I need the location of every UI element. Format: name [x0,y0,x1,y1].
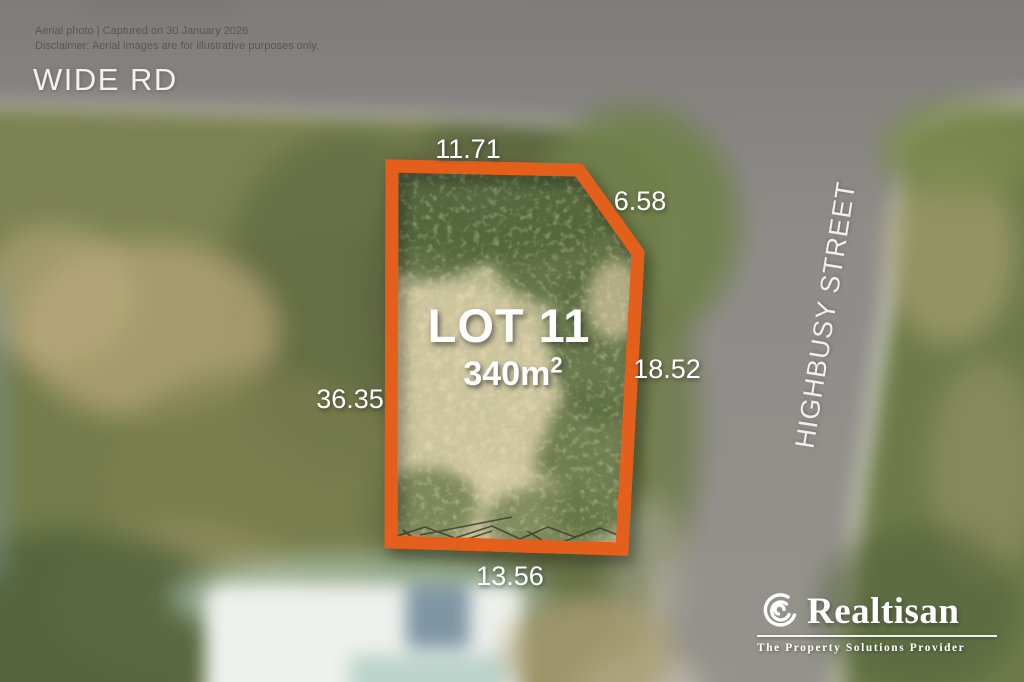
disclaimer-line: Disclaimer: Aerial images are for illust… [35,39,319,54]
measurement-top: 11.71 [435,134,501,165]
brand-name: Realtisan [807,593,960,630]
lot-title: LOT 11 [428,298,591,353]
credit-line: Aerial photo | Captured on 30 January 20… [35,24,319,39]
lot-area: 340m2 [463,355,562,394]
brand-divider [757,635,997,637]
realtisan-swirl-icon [757,592,799,630]
measurement-right: 18.52 [633,354,701,385]
aerial-lot-advert: Aerial photo | Captured on 30 January 20… [0,0,1024,682]
photo-credit: Aerial photo | Captured on 30 January 20… [35,24,319,54]
street-label-wide-rd: WIDE RD [33,62,178,98]
brand-lockup: Realtisan The Property Solutions Provide… [757,592,997,654]
measurement-left: 36.35 [316,384,384,415]
lot-area-value: 340m [463,355,550,393]
lot-area-superscript: 2 [550,353,562,378]
brand-tagline: The Property Solutions Provider [757,642,997,654]
measurement-corner: 6.58 [614,186,667,217]
measurement-bottom: 13.56 [476,561,544,592]
